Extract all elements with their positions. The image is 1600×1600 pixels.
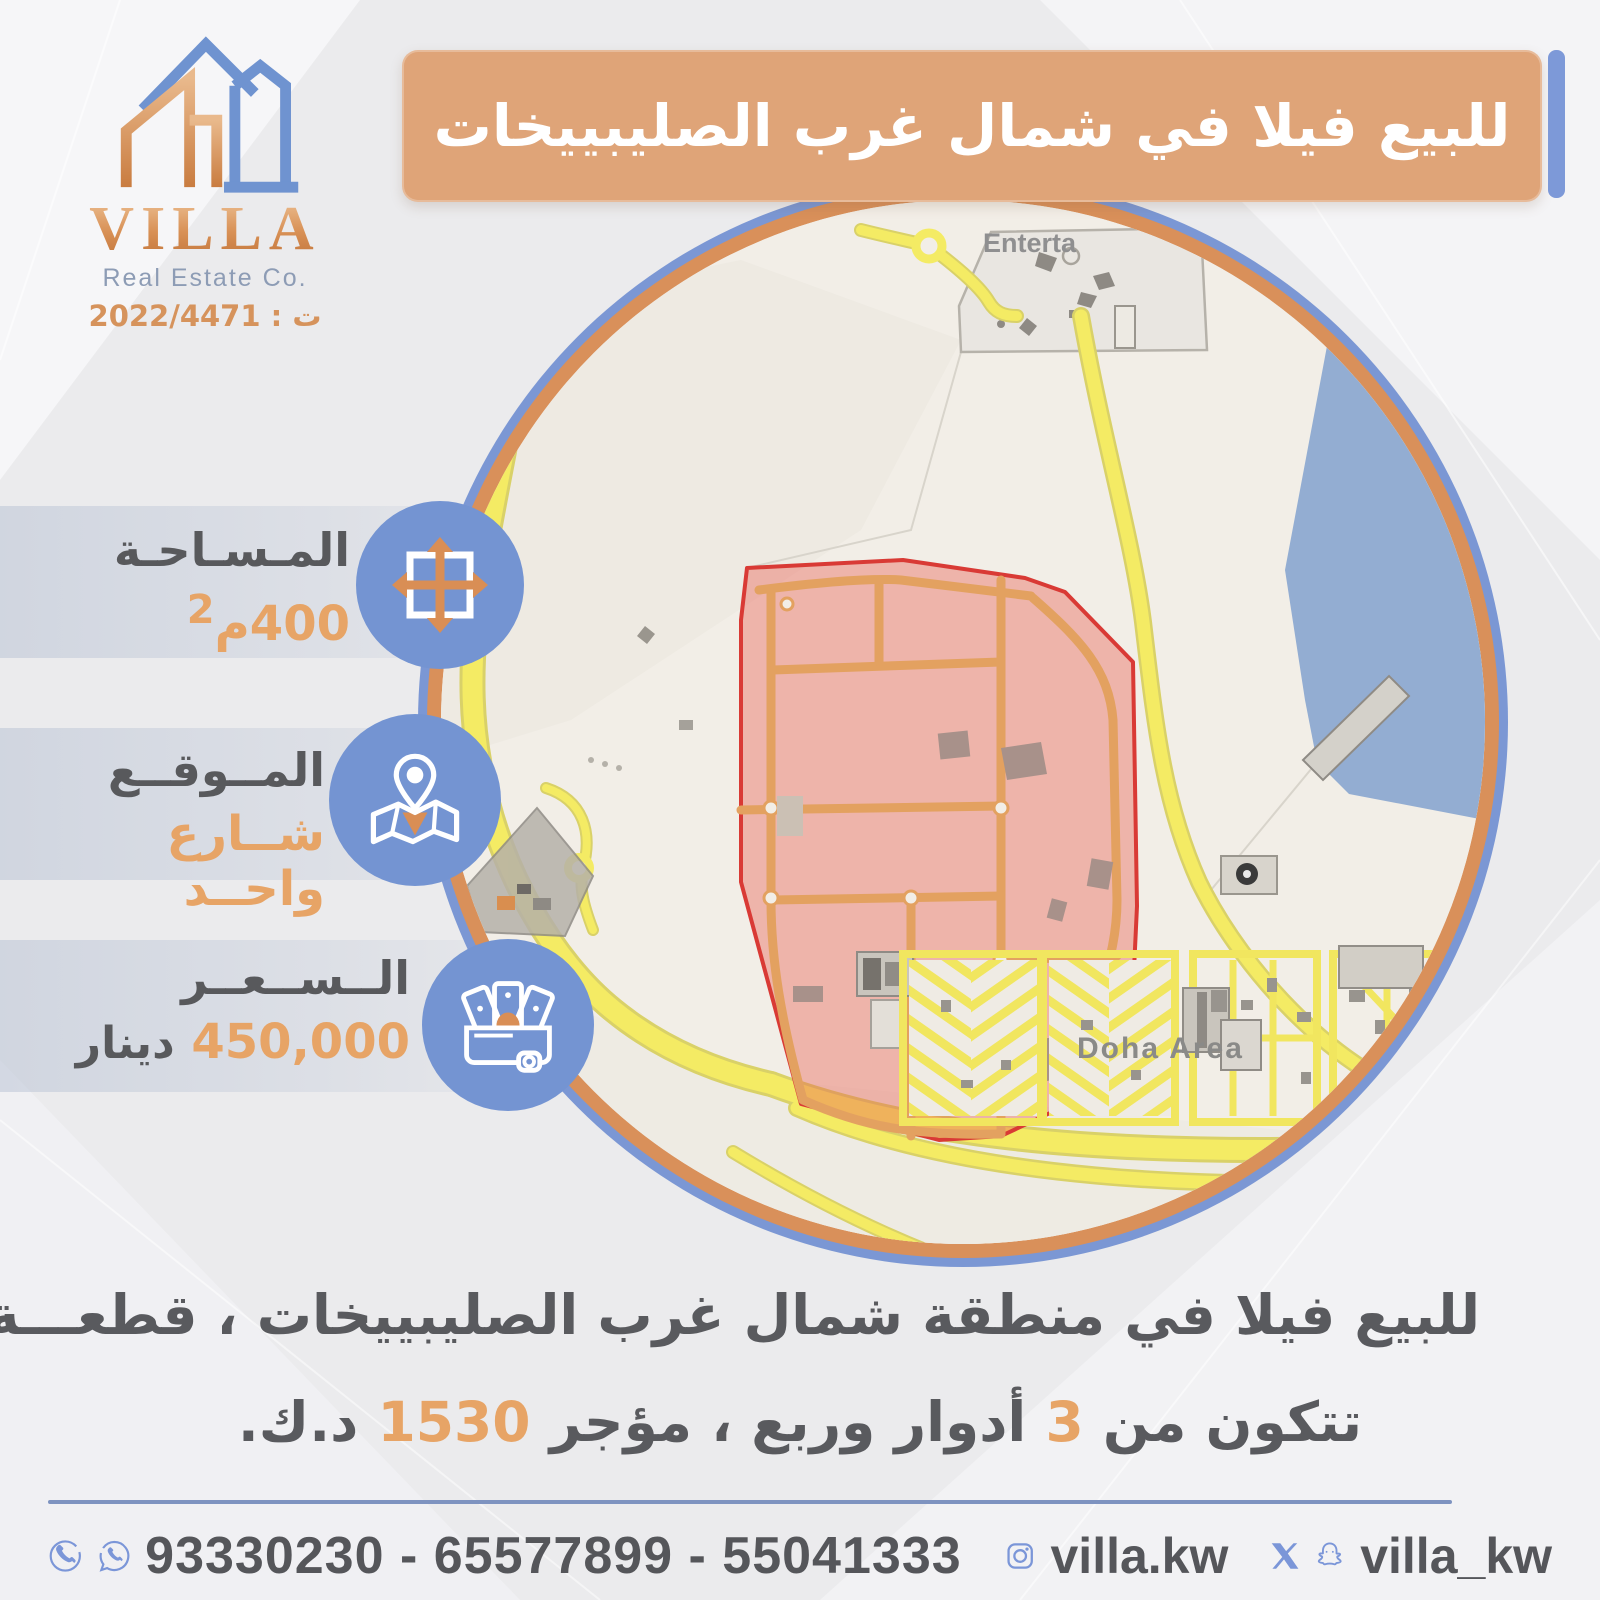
banner-accent-bar (1548, 50, 1565, 198)
price-icon-circle (422, 939, 594, 1111)
description-line1-text: للبيع فيلا في منطقة شمال غرب الصليبييخات… (0, 1283, 1480, 1347)
buildings-logo-icon (93, 26, 317, 198)
logo-subtitle: Real Estate Co. (55, 264, 355, 293)
area-label: المـسـاحـة (20, 524, 350, 577)
area-value-number: 400م (215, 596, 350, 652)
spec-location: المــوقــع شــارع واحــد (10, 744, 325, 917)
description-line2-part1: تتكون من (1084, 1390, 1362, 1454)
location-icon-circle (329, 714, 501, 886)
logo-title: VILLA (55, 198, 355, 260)
map-graphic: Enterta (441, 200, 1485, 1244)
area-value: 400م2 (20, 587, 350, 652)
location-value: شــارع واحــد (10, 807, 325, 917)
cash-icon (455, 972, 561, 1078)
map-label-entertainment: Enterta (983, 228, 1077, 258)
move-arrows-icon (390, 535, 490, 635)
description-line2-number1: 3 (1045, 1390, 1083, 1454)
map-view: Enterta (441, 200, 1485, 1244)
description-line2-part2: أدوار وربع ، مؤجر (531, 1390, 1046, 1454)
snapchat-icon[interactable] (1313, 1526, 1346, 1586)
phone-icon[interactable] (48, 1525, 83, 1587)
whatsapp-icon[interactable] (97, 1525, 132, 1587)
description-line-1: للبيع فيلا في منطقة شمال غرب الصليبييخات… (120, 1288, 1480, 1343)
real-estate-poster: VILLA Real Estate Co. ت : 2022/4471 للبي… (0, 0, 1600, 1600)
x-icon[interactable] (1271, 1531, 1299, 1581)
area-value-sup: 2 (187, 587, 215, 633)
footer-divider (48, 1500, 1452, 1504)
description-line-2: تتكون من 3 أدوار وربع ، مؤجر 1530 د.ك. (120, 1395, 1480, 1450)
footer-contact-bar: 93330230 - 65577899 - 55041333 villa.kw … (48, 1514, 1552, 1598)
area-icon-circle (356, 501, 524, 669)
price-label: الــســعــر (20, 952, 410, 1005)
headline-banner: للبيع فيلا في شمال غرب الصليبييخات (402, 50, 1542, 202)
spec-area: المـسـاحـة 400م2 (20, 524, 350, 652)
social-handle[interactable]: villa_kw (1360, 1527, 1552, 1585)
map-pin-icon (363, 748, 467, 852)
listing-description: للبيع فيلا في منطقة شمال غرب الصليبييخات… (120, 1288, 1480, 1502)
instagram-icon[interactable] (1004, 1527, 1036, 1585)
map-label-doha-area: Doha Area (1077, 1032, 1244, 1065)
price-value: 450,000 دينار (20, 1015, 410, 1070)
spec-price: الــســعــر 450,000 دينار (20, 952, 410, 1070)
phone-numbers[interactable]: 93330230 - 65577899 - 55041333 (145, 1526, 962, 1586)
logo-license-number: ت : 2022/4471 (55, 299, 355, 333)
location-label: المــوقــع (10, 744, 325, 797)
map-medallion: Enterta (418, 177, 1508, 1267)
description-line2-number2: 1530 (377, 1390, 530, 1454)
headline-text: للبيع فيلا في شمال غرب الصليبييخات (434, 92, 1511, 160)
company-logo: VILLA Real Estate Co. ت : 2022/4471 (55, 26, 355, 333)
instagram-handle[interactable]: villa.kw (1051, 1527, 1229, 1585)
price-value-number: 450,000 (191, 1014, 410, 1070)
description-line2-part3: د.ك. (238, 1390, 378, 1454)
price-unit: دينار (76, 1018, 175, 1069)
